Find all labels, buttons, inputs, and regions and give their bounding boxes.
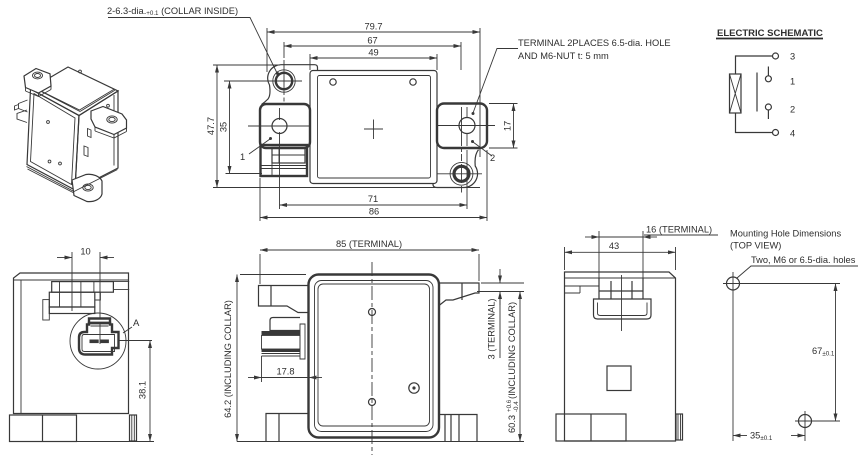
svg-text:ELECTRIC SCHEMATIC: ELECTRIC SCHEMATIC <box>717 28 823 39</box>
svg-text:86: 86 <box>369 207 379 217</box>
svg-text:60.3: 60.3 <box>507 415 517 433</box>
svg-text:(INCLUDING COLLAR): (INCLUDING COLLAR) <box>507 302 517 399</box>
svg-text:3: 3 <box>790 52 795 62</box>
svg-text:A: A <box>133 318 140 329</box>
svg-text:85 (TERMINAL): 85 (TERMINAL) <box>336 239 402 249</box>
svg-text:43: 43 <box>609 241 619 251</box>
svg-text:-0.4: -0.4 <box>513 401 520 412</box>
svg-text:17: 17 <box>503 121 513 131</box>
svg-text:3 (TERMINAL): 3 (TERMINAL) <box>487 299 497 360</box>
svg-text:71: 71 <box>368 194 378 204</box>
svg-text:17.8: 17.8 <box>276 367 294 377</box>
svg-text:16 (TERMINAL): 16 (TERMINAL) <box>646 225 712 235</box>
svg-text:79.7: 79.7 <box>364 22 382 32</box>
svg-text:49: 49 <box>368 48 378 58</box>
svg-text:2: 2 <box>490 153 495 163</box>
svg-text:1: 1 <box>790 77 795 87</box>
svg-text:38.1: 38.1 <box>138 381 148 399</box>
svg-text:2: 2 <box>790 105 795 115</box>
svg-text:47.7: 47.7 <box>206 117 216 135</box>
svg-text:Two, M6 or 6.5-dia. holes: Two, M6 or 6.5-dia. holes <box>751 255 856 265</box>
svg-text:AND M6-NUT t: 5 mm: AND M6-NUT t: 5 mm <box>518 51 609 61</box>
svg-text:10: 10 <box>80 247 90 257</box>
svg-text:+0.6: +0.6 <box>506 399 513 412</box>
svg-text:(TOP VIEW): (TOP VIEW) <box>730 241 781 251</box>
svg-text:2-6.3-dia.+0.1 (COLLAR INSIDE): 2-6.3-dia.+0.1 (COLLAR INSIDE) <box>107 6 238 17</box>
svg-text:67: 67 <box>367 36 377 46</box>
svg-text:Mounting Hole Dimensions: Mounting Hole Dimensions <box>730 229 841 239</box>
svg-text:TERMINAL 2PLACES 6.5-dia. HOLE: TERMINAL 2PLACES 6.5-dia. HOLE <box>518 38 671 48</box>
svg-text:64.2 (INCLUDING COLLAR): 64.2 (INCLUDING COLLAR) <box>223 300 233 418</box>
svg-text:35: 35 <box>219 122 229 132</box>
svg-text:4: 4 <box>790 129 795 139</box>
svg-text:1: 1 <box>240 152 245 162</box>
